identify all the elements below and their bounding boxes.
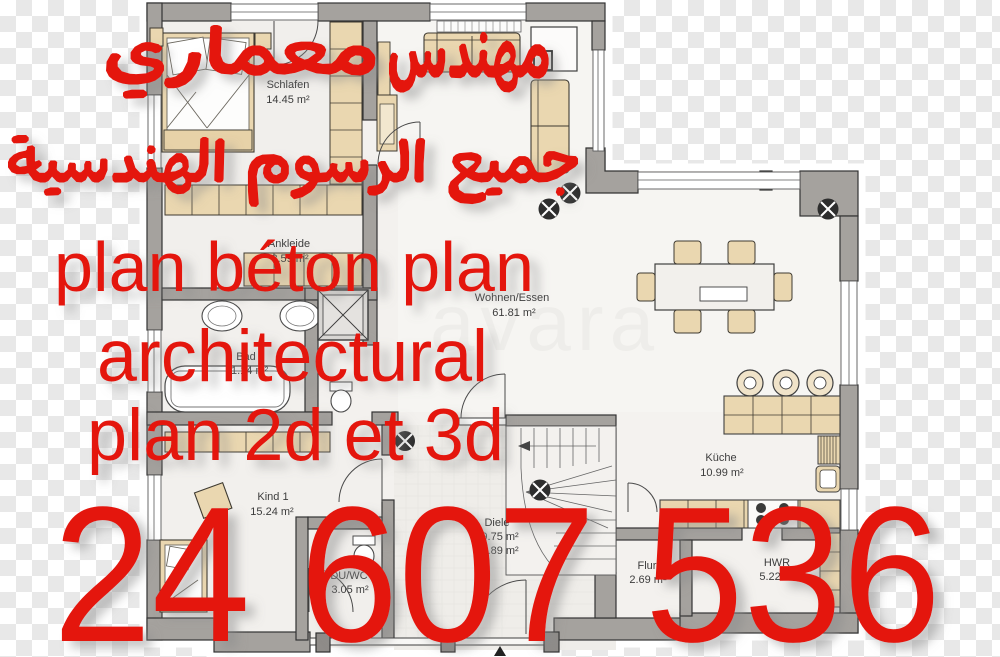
- svg-text:24 607 536: 24 607 536: [53, 466, 941, 657]
- svg-text:61.81 m²: 61.81 m²: [492, 307, 536, 319]
- svg-text:plan béton plan: plan béton plan: [54, 228, 534, 306]
- svg-text:plan 2d et 3d: plan 2d et 3d: [87, 395, 504, 476]
- svg-text:Schlafen: Schlafen: [267, 79, 310, 91]
- svg-text:architectural: architectural: [97, 316, 488, 397]
- svg-text:Küche: Küche: [705, 452, 736, 464]
- svg-text:14.45 m²: 14.45 m²: [266, 94, 310, 106]
